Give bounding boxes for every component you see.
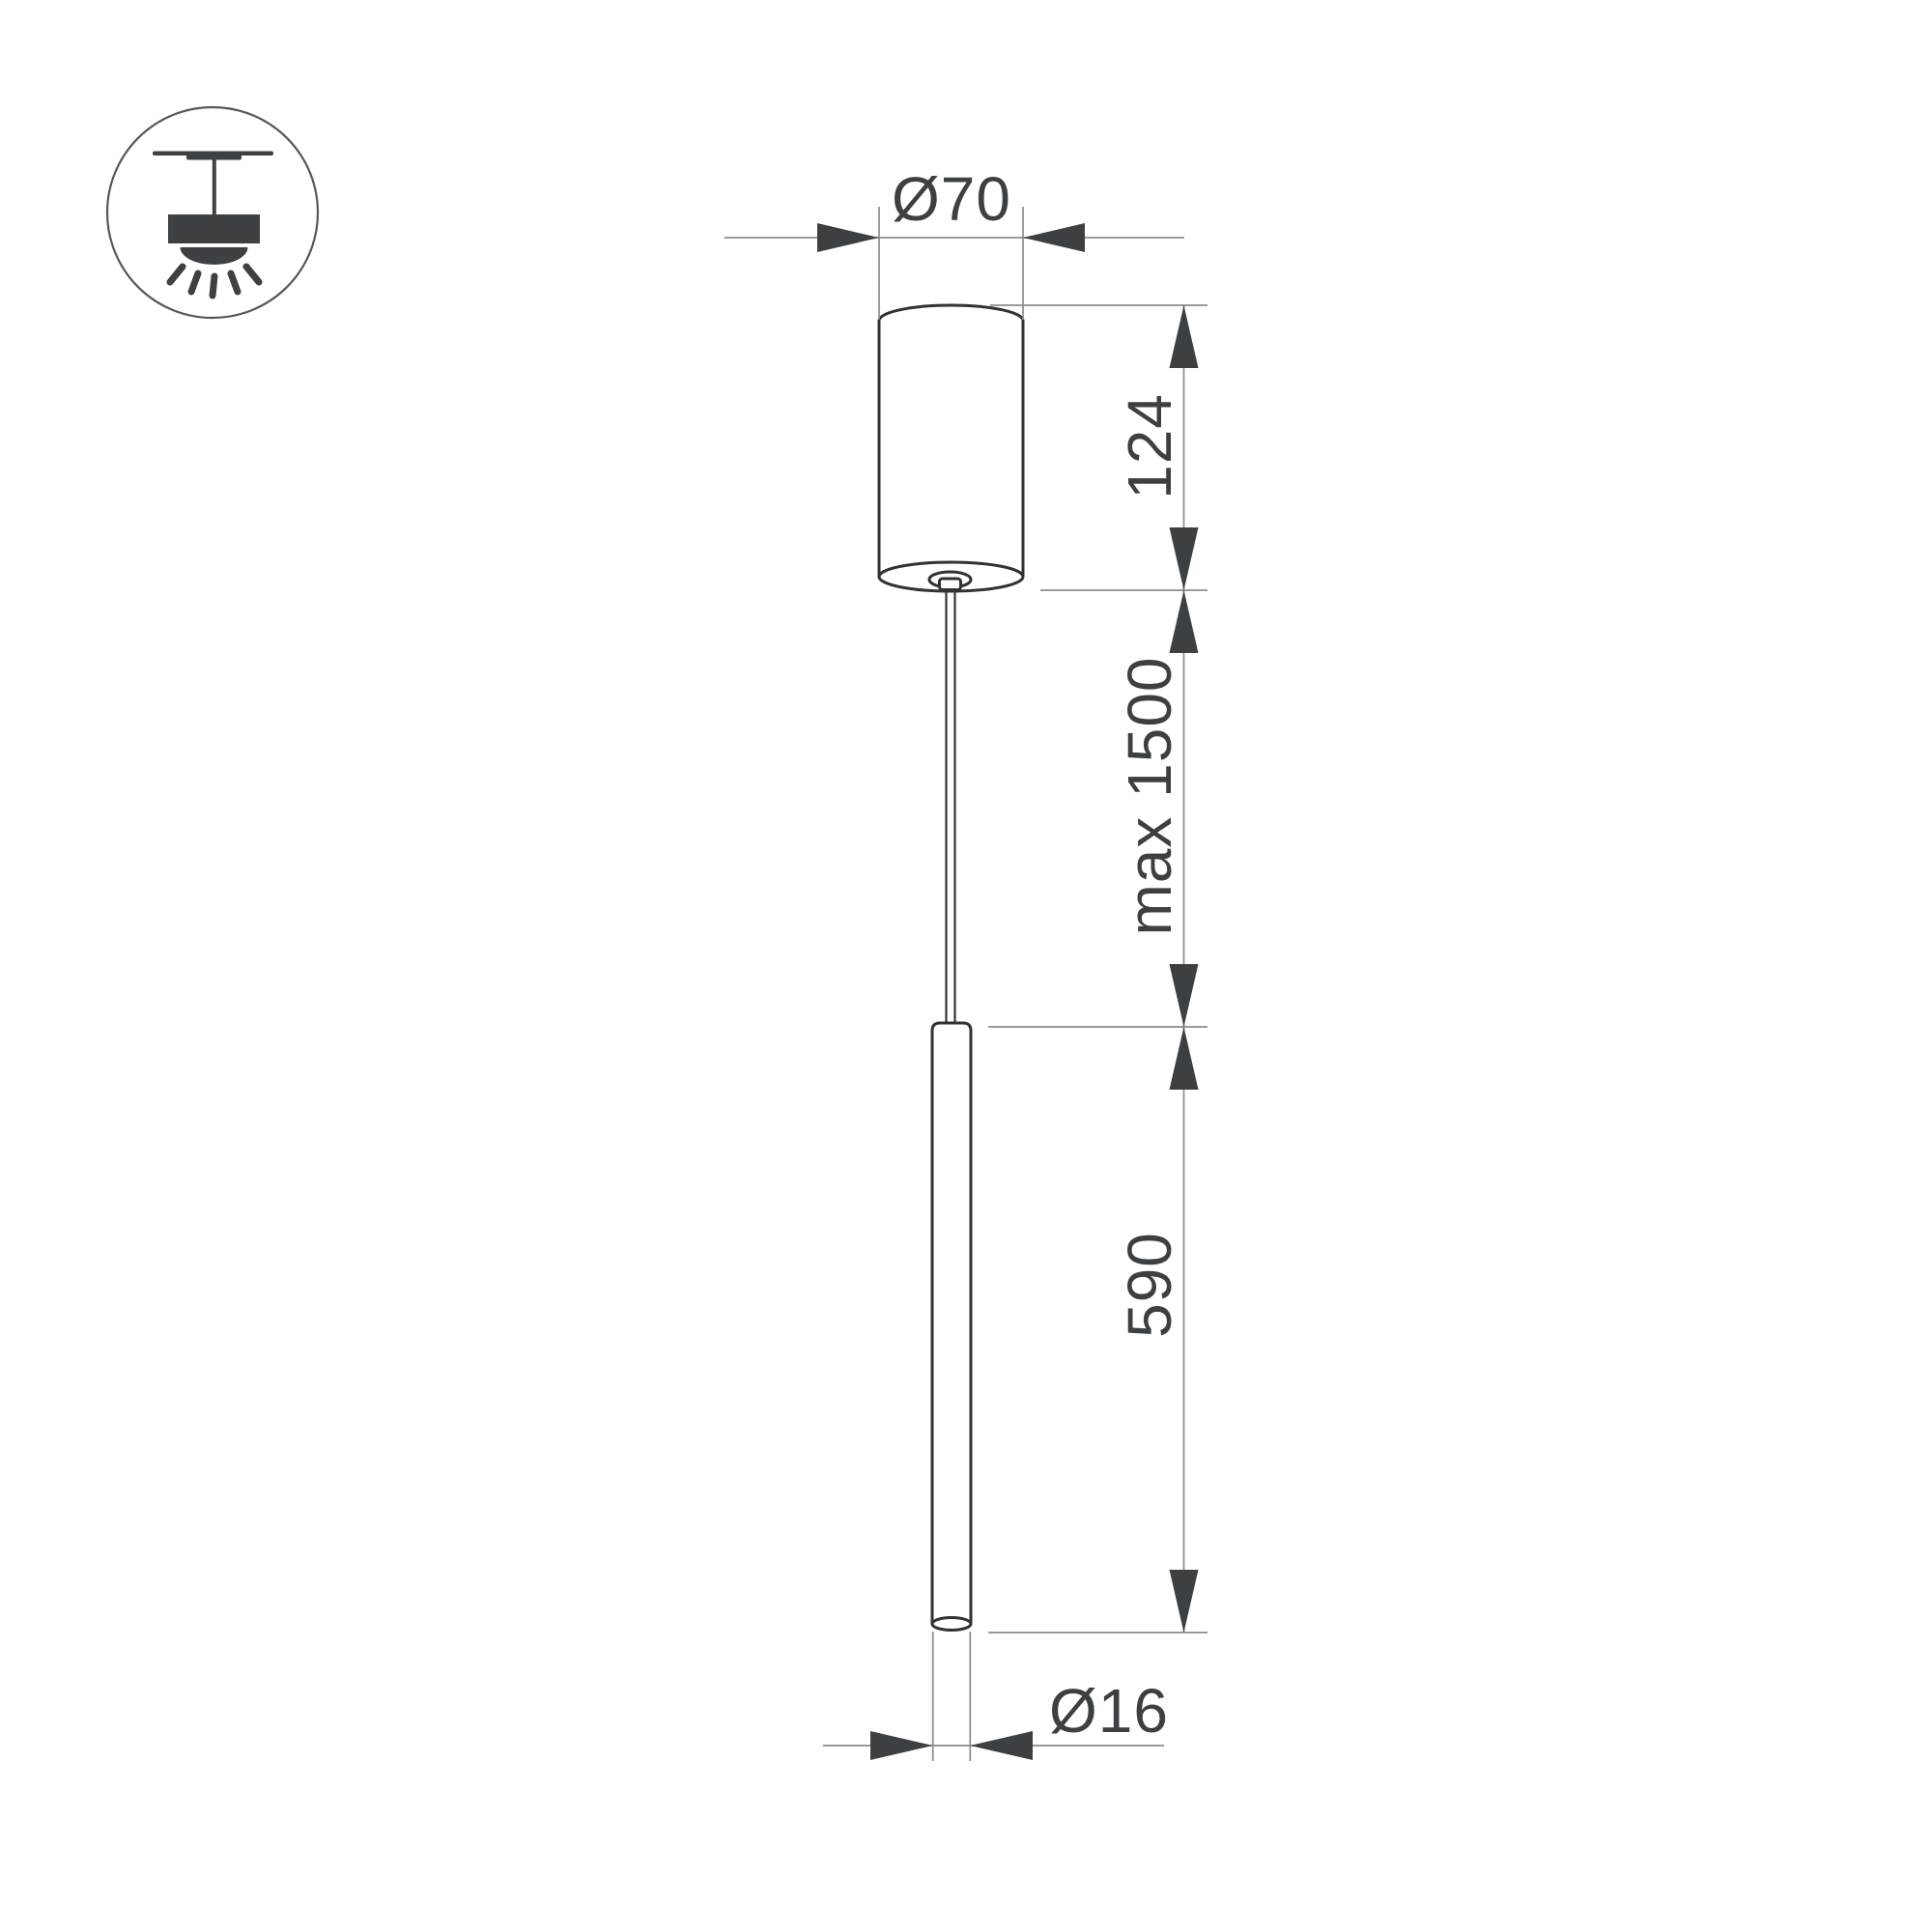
arrow-left-icon (970, 1731, 1033, 1760)
dimension-label-canopy-diameter: Ø70 (892, 164, 1011, 234)
dimension-label-canopy-height: 124 (1115, 393, 1184, 499)
dimension-canopy-diameter: Ø70 (724, 164, 1184, 320)
arrow-up-icon (1170, 305, 1199, 368)
canopy-body (879, 305, 1023, 577)
arrow-right-icon (870, 1731, 933, 1760)
dimension-tube-diameter: Ø16 (823, 1632, 1169, 1761)
technical-drawing-page: Ø70 124 max 1500 590 (0, 0, 1932, 1932)
pendant-lamp-dimension-drawing: Ø70 124 max 1500 590 (0, 0, 1932, 1932)
lamp-drawing (879, 305, 1023, 1631)
dimension-label-tube-diameter: Ø16 (1049, 1676, 1169, 1746)
ceiling-pendant-mount-icon (107, 107, 318, 318)
dimension-label-suspension-max: max 1500 (1115, 656, 1184, 935)
arrow-down-icon (1170, 964, 1199, 1027)
arrow-up-icon (1170, 590, 1199, 653)
suspension-cable (947, 589, 955, 1024)
icon-lamp-body (168, 214, 260, 243)
cable-gland-nipple (940, 579, 961, 590)
arrow-up-icon (1170, 1027, 1199, 1090)
arrow-down-icon (1170, 527, 1199, 590)
arrow-right-icon (817, 223, 879, 252)
tube-luminaire-body (932, 1023, 971, 1624)
dimension-label-luminaire-length: 590 (1115, 1232, 1184, 1338)
icon-stem (213, 158, 216, 215)
tube-bottom-rim (932, 1618, 971, 1631)
arrow-left-icon (1023, 223, 1085, 252)
arrow-down-icon (1170, 1570, 1199, 1633)
